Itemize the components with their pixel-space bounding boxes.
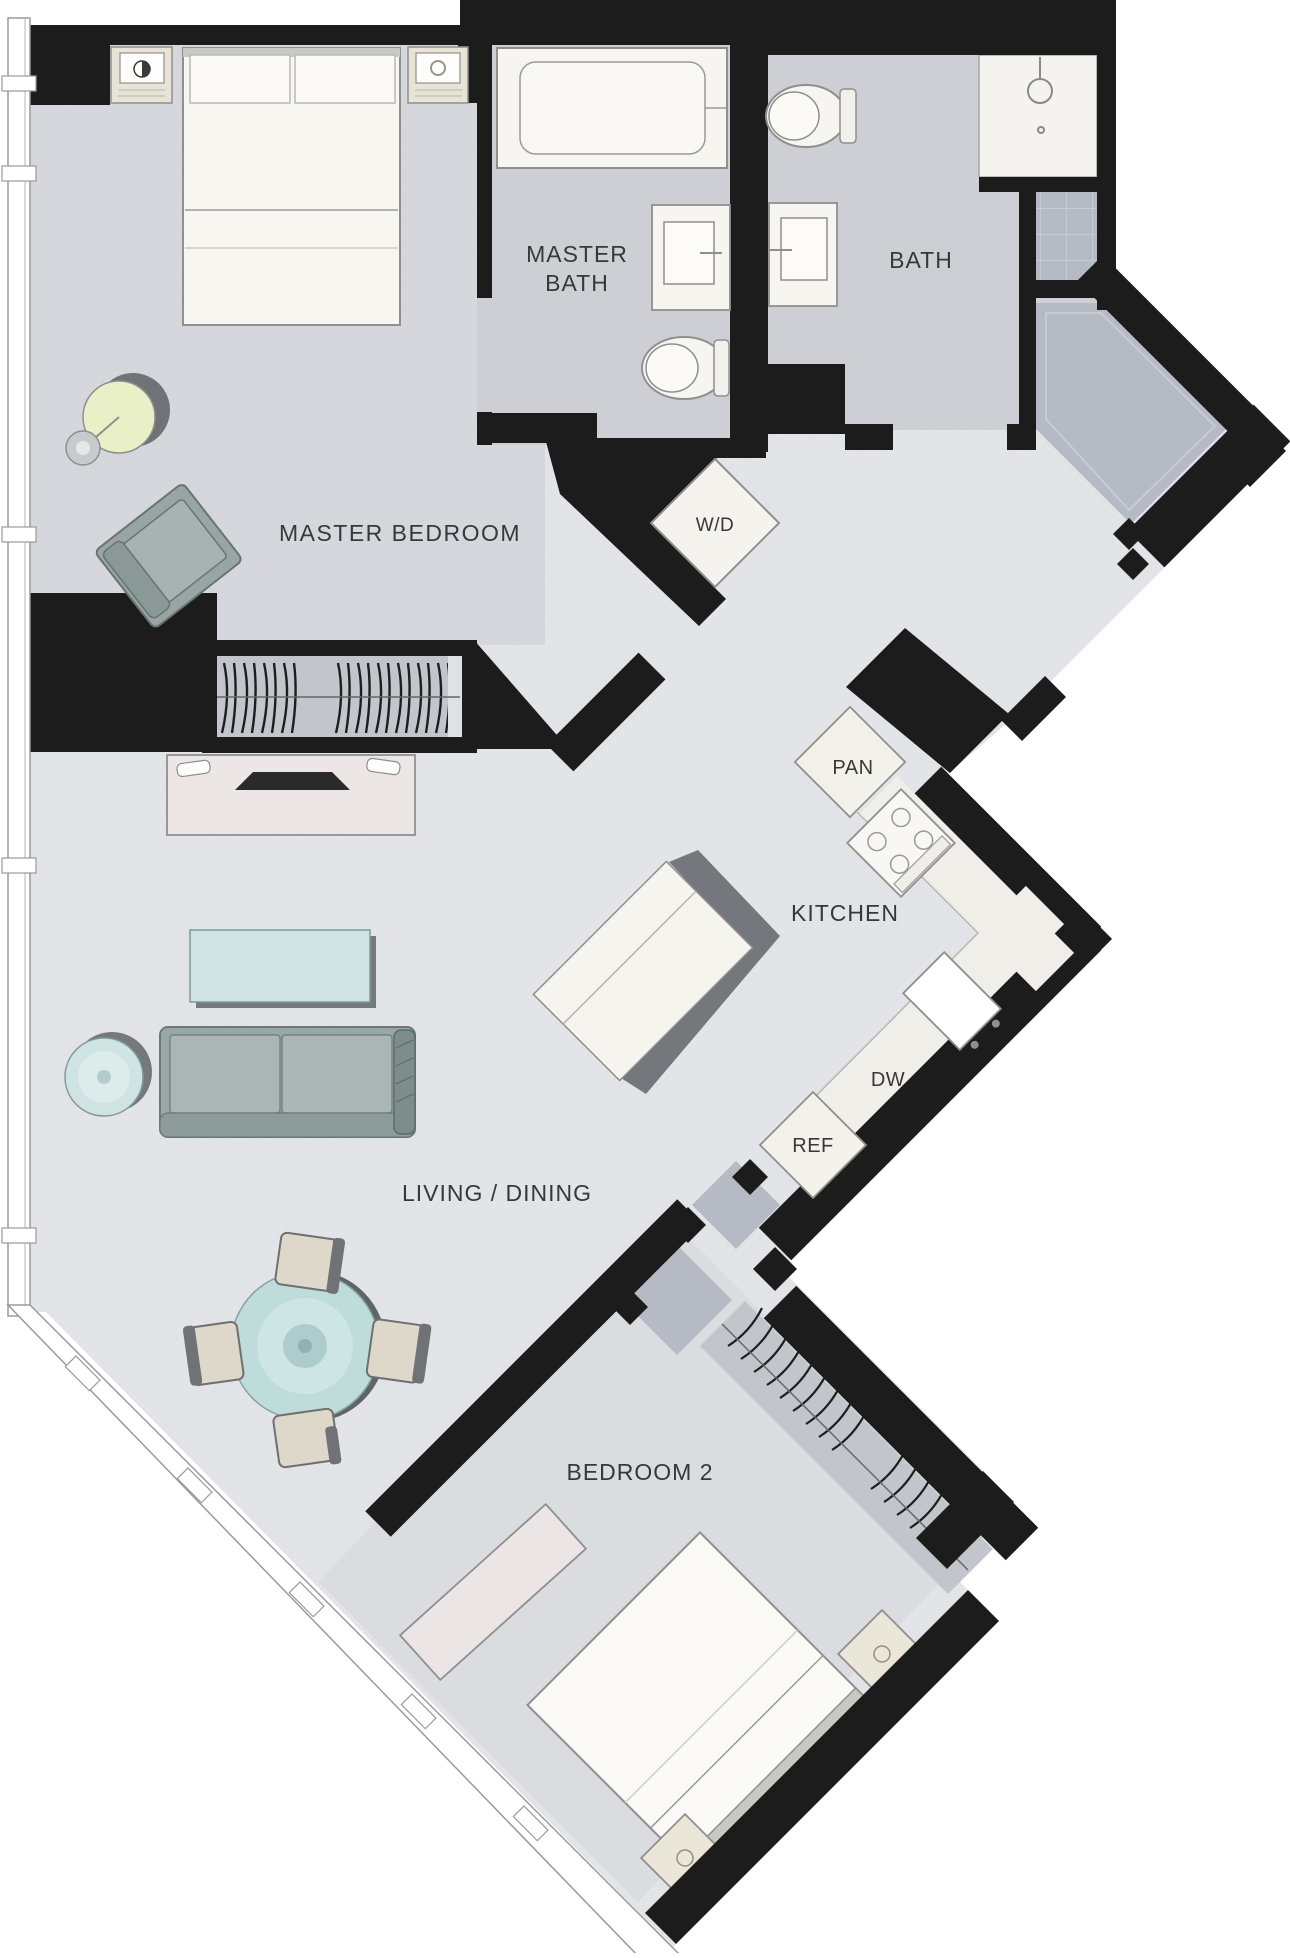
svg-text:MASTER BEDROOM: MASTER BEDROOM [279,520,521,546]
svg-text:REF: REF [792,1135,834,1157]
svg-text:MASTER: MASTER [526,241,628,267]
svg-text:W/D: W/D [696,515,734,536]
svg-text:BATH: BATH [545,270,609,296]
svg-text:BATH: BATH [889,247,953,273]
svg-text:PAN: PAN [832,757,873,779]
svg-text:DW: DW [871,1069,905,1091]
svg-text:KITCHEN: KITCHEN [791,900,899,926]
svg-text:LIVING / DINING: LIVING / DINING [402,1180,592,1206]
svg-text:BEDROOM 2: BEDROOM 2 [566,1459,713,1485]
